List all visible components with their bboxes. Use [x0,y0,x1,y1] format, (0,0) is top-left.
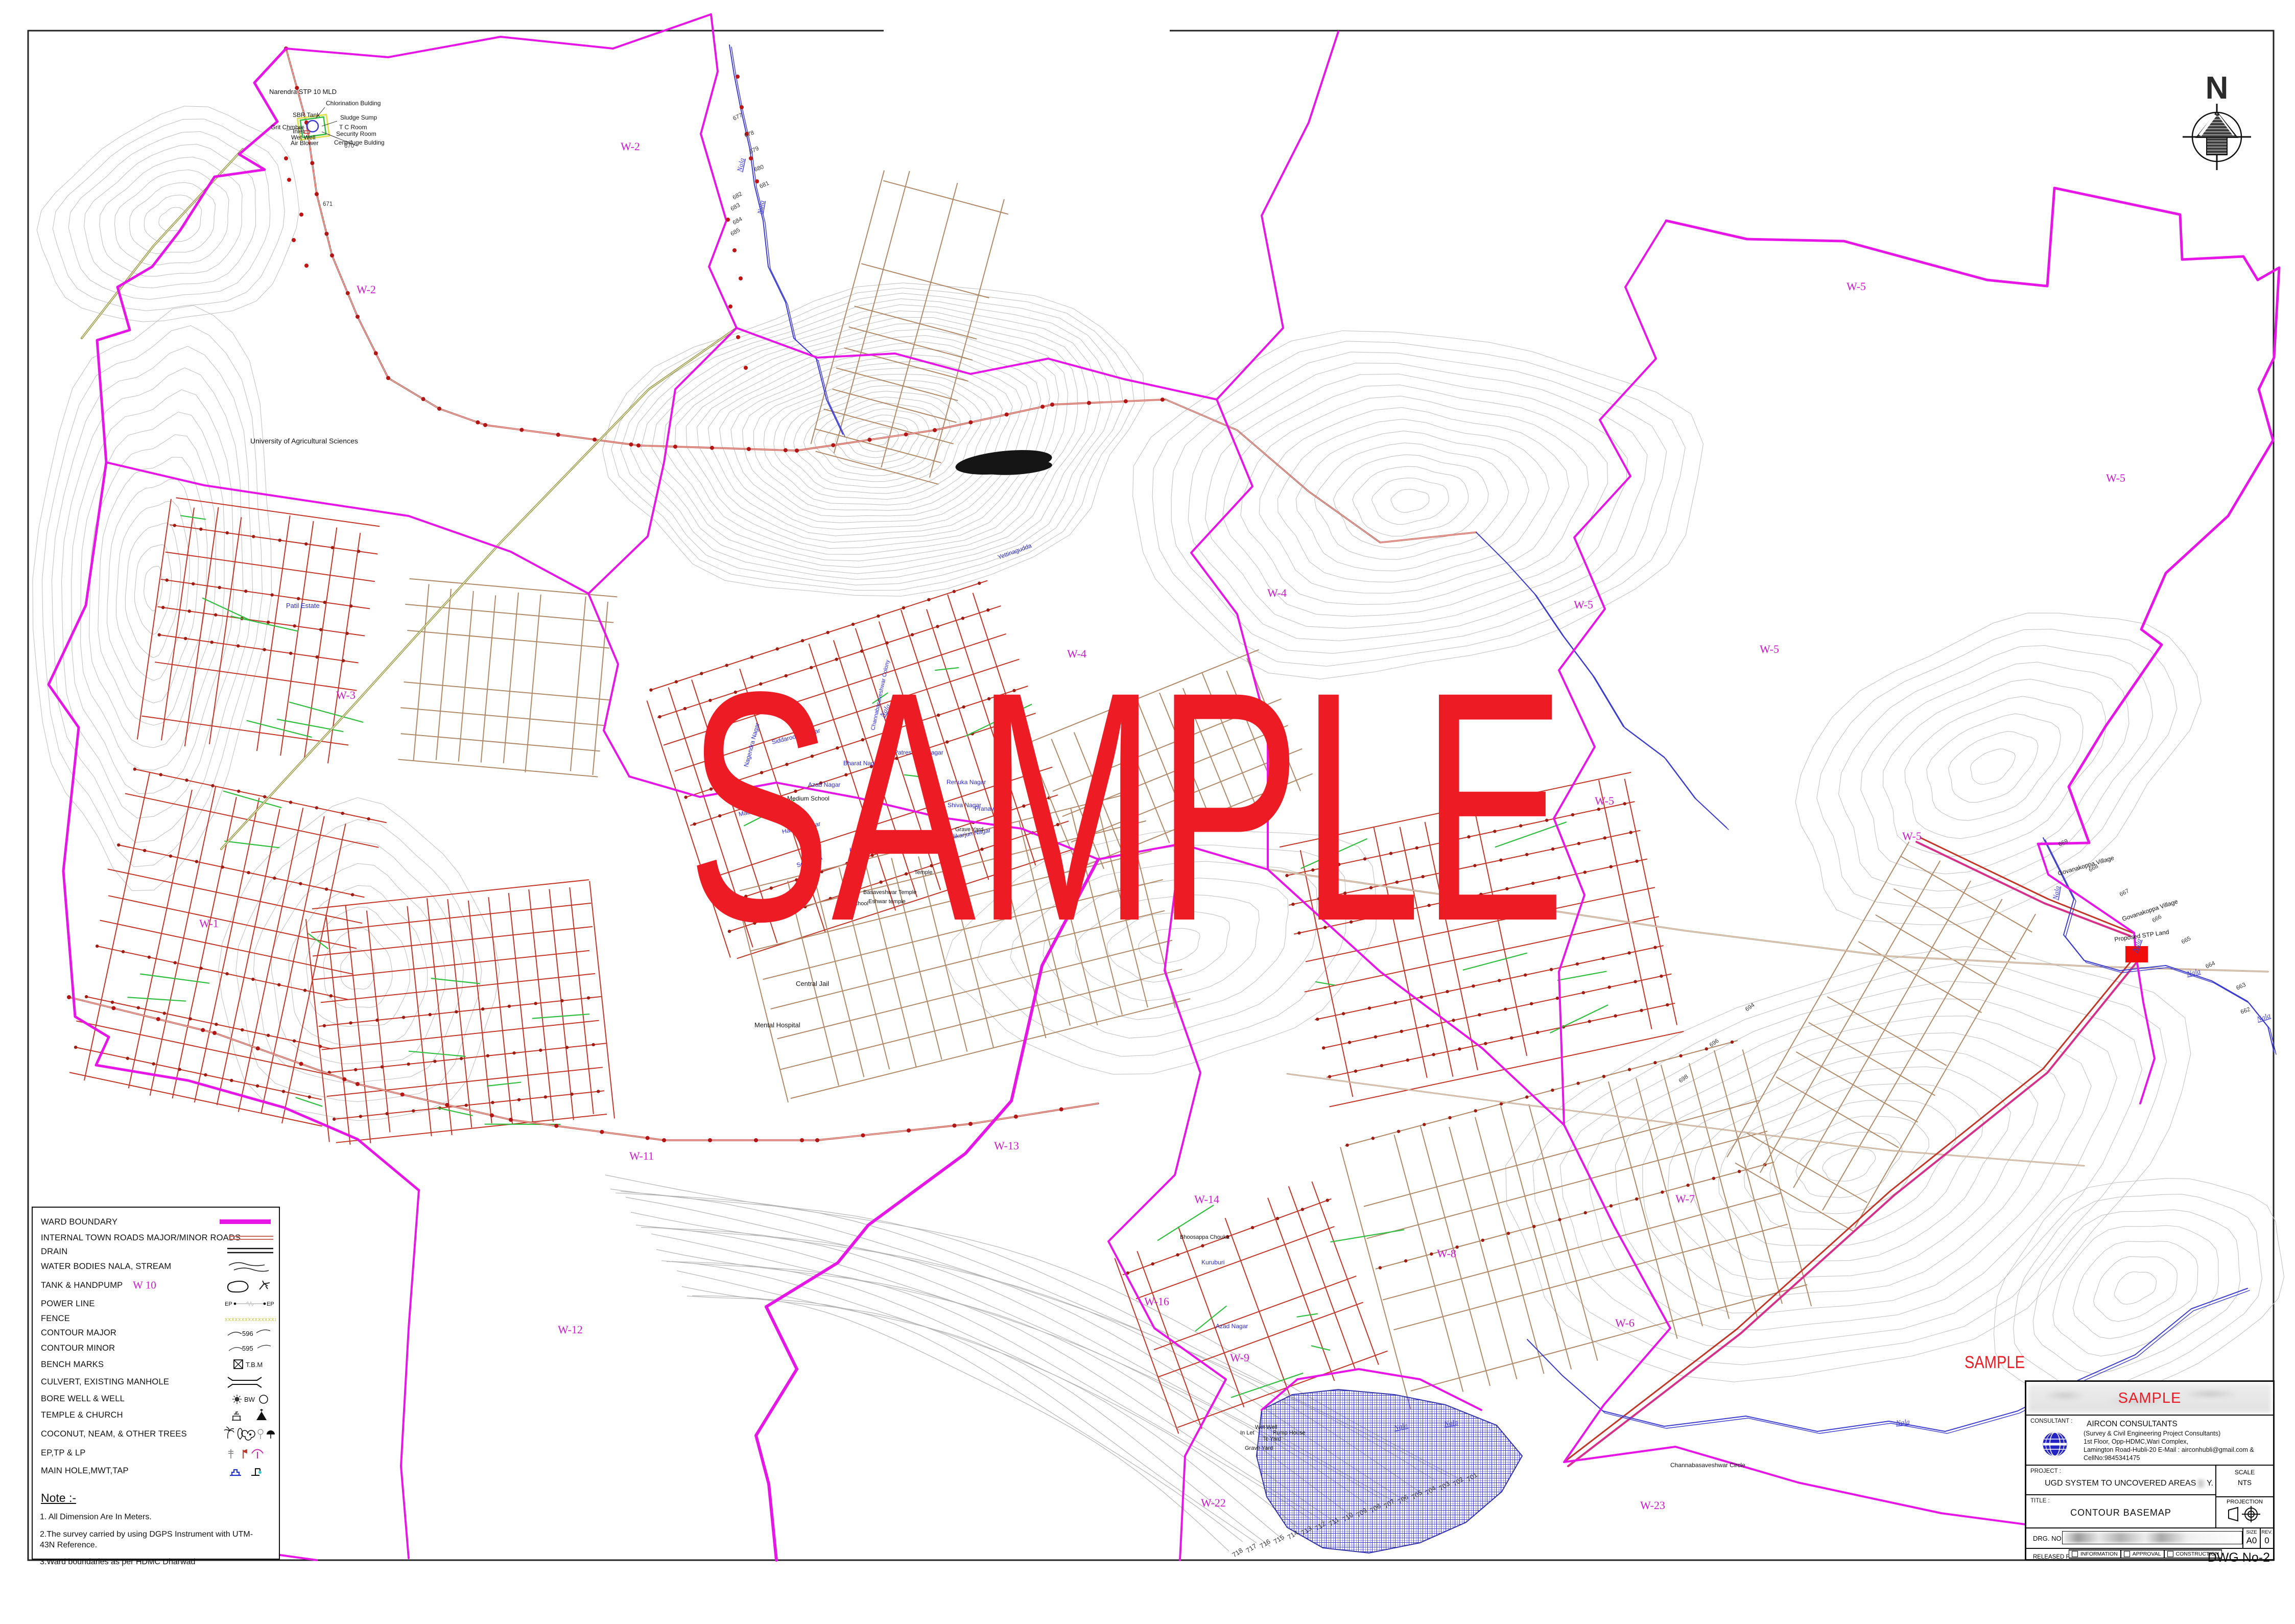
size-value: A0 [2243,1536,2260,1546]
power-symbol: EPEP [199,1296,276,1311]
legend-item-drain: DRAIN [33,1245,279,1258]
place-label: T C Room [339,124,367,131]
place-label: Govanakoppa Village [2057,854,2115,877]
place-label: Tc Yard [1263,1436,1281,1442]
ward-label: W-5 [1902,830,1922,842]
contour-elevation-label: 662 [2240,1006,2251,1016]
approval-checkbox [2124,1551,2130,1557]
ward-label: W-1 [199,917,219,930]
legend-item-water: WATER BODIES NALA, STREAM [33,1258,279,1275]
legend-item-label: POWER LINE [33,1299,95,1309]
ward-label: W-3 [336,689,356,701]
title-block: SAMPLE CONSULTANT : AIRCON CONSULTANTS (… [2025,1380,2275,1561]
ward-label: W-4 [1267,586,1287,599]
ward-label: W-2 [621,140,640,153]
tank-symbol [199,1278,276,1293]
legend-item-bore: BORE WELL & WELLBW [33,1391,279,1407]
legend-item-temple: TEMPLE & CHURCH [33,1407,279,1424]
approval-label: APPROVAL [2133,1551,2161,1557]
title-row: TITLE : CONTOUR BASEMAP SCALE NTS PROJEC… [2026,1495,2273,1528]
title-block-header-strip: SAMPLE [2026,1382,2273,1416]
ward-label: W-5 [1595,794,1614,807]
svg-text:EP: EP [225,1301,232,1307]
contour-elevation-label: 679 [748,146,760,155]
legend-item-fence: FENCExxxxxxxxxxxxxxxxx [33,1312,279,1326]
contour-elevation-label: 717 [1244,1542,1258,1554]
ward-label: W-9 [1230,1351,1249,1364]
ward-boundary [2038,844,2155,1103]
contour-elevation-label: 685 [730,227,742,238]
place-label: Azad Nagar [1216,1323,1248,1330]
project-redacted [2198,1479,2205,1488]
legend-item-power: POWER LINEEPEP [33,1296,279,1312]
place-label: Security Room [336,130,376,137]
poles-symbol [199,1445,276,1461]
place-label: Kuruburi [1201,1259,1224,1266]
ward-boundary [1554,221,1666,1125]
svg-text:596: 596 [242,1330,253,1337]
contour-elevation-label: 696 [1709,1038,1720,1049]
ward-label: W-12 [558,1323,583,1336]
dwg-number: DWG No-2 [2208,1550,2270,1565]
notes-section: Note :- 1. All Dimension Are In Meters.2… [33,1480,279,1568]
consultant-logo-globe [2042,1431,2068,1457]
svg-text:595: 595 [242,1345,253,1352]
released-row: RELEASED FOR INFORMATION APPROVAL CONSTR… [2026,1549,2273,1559]
roads-symbol [199,1231,276,1246]
stream-label: Nala [1895,1419,1910,1427]
legend-item-label: WATER BODIES NALA, STREAM [33,1262,171,1272]
consultant-row: CONSULTANT : AIRCON CONSULTANTS (Survey … [2026,1416,2273,1466]
legend-item-label: TANK & HANDPUMP [33,1281,123,1290]
projection-label: PROJECTION [2216,1499,2273,1505]
north-arrow-letter: N [2206,70,2229,106]
legend-ward-ref: W 10 [133,1279,156,1292]
legend-item-label: CONTOUR MAJOR [33,1328,116,1338]
drawing-sheet: 7017027037047057067077087097107117127137… [0,0,2295,1624]
drg-number-field [2062,1531,2242,1544]
consultant-name: AIRCON CONSULTANTS [2087,1420,2178,1429]
legend-item-utility: MAIN HOLE,MWT,TAP [33,1462,279,1480]
legend-item-label: COCONUT, NEAM, & OTHER TREES [33,1429,187,1439]
legend-item-label: TEMPLE & CHURCH [33,1410,123,1420]
bench-symbol: T.B.M [199,1357,276,1372]
ward-label: W-23 [1640,1499,1665,1512]
size-label: SIZE [2243,1529,2260,1535]
drawing-title: CONTOUR BASEMAP [2026,1508,2215,1518]
place-label: Grave Yard [1245,1445,1273,1451]
project-label: PROJECT : [2030,1468,2061,1474]
legend-item-label: BENCH MARKS [33,1360,104,1370]
legend-item-poles: EP,TP & LP [33,1444,279,1462]
information-label: INFORMATION [2080,1551,2118,1557]
ward-label: W-14 [1194,1193,1219,1206]
notes-heading: Note :- [41,1491,272,1505]
note-item: 2.The survey carried by using DGPS Instr… [40,1529,265,1551]
sample-watermark-small: SAMPLE [1965,1353,2025,1372]
title-label: TITLE : [2030,1498,2050,1504]
place-label: Pump House [1273,1430,1306,1436]
title-block-sample: SAMPLE [2118,1390,2182,1407]
drg-row: DRG. NO SIZE A0 REV. 0 [2026,1528,2273,1549]
cminor-symbol: 595 [199,1340,276,1356]
legend-item-label: DRAIN [33,1247,67,1257]
note-item: 3.Ward boundaries as per HDMC Dharwad [40,1557,265,1568]
stream-label: Nala [756,200,767,215]
information-checkbox [2072,1551,2078,1557]
legend-item-label: FENCE [33,1314,70,1324]
projection-symbol [2225,1505,2265,1523]
consultant-line: 1st Floor, Opp-HDMC,Wari Complex, [2084,1438,2188,1445]
svg-text:BW: BW [244,1396,255,1403]
consultant-line: Lamington Road-Hubli-20 E-Mail : airconh… [2084,1446,2254,1453]
contour-elevation-label: 718 [1231,1546,1244,1559]
ward-boundary [286,14,711,57]
ward-label: W-2 [357,283,376,296]
svg-text:T.B.M: T.B.M [246,1361,263,1369]
size-cell: SIZE A0 [2242,1528,2260,1548]
place-label: Narendra STP 10 MLD [269,88,337,96]
ward-label: W-11 [629,1149,654,1162]
contour-elevation-label: 664 [2205,960,2216,970]
fence-symbol: xxxxxxxxxxxxxxxxx [199,1311,276,1327]
scale-projection-column: SCALE NTS PROJECTION [2215,1466,2273,1527]
note-item: 1. All Dimension Are In Meters. [40,1512,265,1523]
consultant-label: CONSULTANT : [2030,1418,2072,1424]
contour-elevation-label: 671 [323,201,333,207]
construction-checkbox [2167,1551,2173,1557]
released-option-approval: APPROVAL [2121,1549,2164,1559]
ward-label: W-5 [1760,643,1779,655]
place-label: Sludge Sump [340,114,377,121]
rev-cell: REV. 0 [2260,1528,2273,1548]
contour-elevation-label: 680 [753,164,765,173]
legend-item-label: MAIN HOLE,MWT,TAP [33,1466,129,1476]
legend-item-label: CONTOUR MINOR [33,1344,115,1353]
legend-item-roads: INTERNAL TOWN ROADS MAJOR/MINOR ROADS [33,1231,279,1245]
scale-label: SCALE [2216,1469,2273,1476]
water-symbol [199,1259,276,1275]
legend-item-cminor: CONTOUR MINOR595 [33,1340,279,1356]
contour-elevation-label: 682 [732,191,744,201]
contour-elevation-label: 684 [732,216,744,226]
legend-item-label: EP,TP & LP [33,1448,86,1458]
contour-elevation-label: 670 [344,143,354,149]
cmajor-symbol: 596 [199,1326,276,1341]
contour-elevation-label: 681 [759,180,770,190]
contour-elevation-label: 669 [2057,838,2069,848]
legend-item-bench: BENCH MARKST.B.M [33,1356,279,1373]
rev-label: REV. [2261,1529,2273,1535]
contour-elevation-label: 663 [2235,982,2246,992]
ward-label: W-7 [1675,1192,1695,1205]
place-label: Mental Hospital [754,1021,800,1029]
project-text: UGD SYSTEM TO UNCOVERED AREAS [2045,1479,2196,1488]
temple-symbol [199,1408,276,1423]
place-label: Chlorination Bulding [326,100,381,107]
legend-item-label: WARD BOUNDARY [33,1217,117,1227]
ward-label: W-13 [994,1139,1019,1152]
place-label: SBR Tank [293,111,320,119]
ward-boundary [1666,188,2279,844]
ward-label: W-22 [1201,1496,1226,1509]
stream-label: Nala [2052,885,2062,901]
ward-label: W-5 [2106,472,2125,484]
ward-label: W-8 [1437,1247,1456,1260]
place-label: Air Blower [291,139,319,147]
ward-boundary [401,1190,419,1558]
legend-item-label: CULVERT, EXISTING MANHOLE [33,1377,169,1387]
svg-text:xxxxxxxxxxxxxxxxx: xxxxxxxxxxxxxxxxx [225,1316,276,1323]
ward-symbol [199,1214,276,1230]
water-tank-area [1257,1390,1522,1553]
contour-elevation-label: 666 [2151,914,2163,924]
legend-item-trees: COCONUT, NEAM, & OTHER TREES [33,1424,279,1444]
legend-item-ward: WARD BOUNDARY [33,1213,279,1231]
place-label: Channabasaveshwar Circle [1670,1462,1745,1469]
map-canvas: 7017027037047057067077087097107117127137… [0,0,2295,1624]
svg-text:EP: EP [267,1301,274,1307]
legend-item-tank: TANK & HANDPUMPW 10 [33,1275,279,1296]
contour-elevation-label: 665 [2181,935,2192,946]
ward-label: W-16 [1144,1295,1169,1308]
place-label: Patil Estate [286,602,320,609]
legend-item-culvert: CULVERT, EXISTING MANHOLE [33,1373,279,1391]
culvert-symbol [199,1375,276,1390]
place-label: University of Agricultural Sciences [250,437,358,445]
legend-panel: WARD BOUNDARYINTERNAL TOWN ROADS MAJOR/M… [32,1207,280,1560]
released-option-information: INFORMATION [2069,1549,2121,1559]
stream-label: Nala [736,157,747,173]
ward-boundary [49,49,419,1190]
map-cover-patch [884,29,1170,89]
contour-elevation-label: 694 [1744,1002,1756,1013]
rev-value: 0 [2261,1536,2273,1546]
project-suffix: Y. [2207,1479,2213,1488]
place-label: Bhoosappa Chouka [1180,1234,1230,1240]
scale-value: NTS [2216,1479,2273,1487]
place-label: In Let [1240,1430,1255,1436]
bore-symbol: BW [199,1392,276,1407]
ward-boundary [106,462,588,594]
contour-elevation-label: 698 [1678,1074,1690,1085]
ward-label: W-5 [1847,280,1866,293]
consultant-line: (Survey & Civil Engineering Project Cons… [2084,1430,2220,1437]
legend-rows: WARD BOUNDARYINTERNAL TOWN ROADS MAJOR/M… [33,1213,279,1480]
consultant-line: CellNo:9845341475 [2084,1454,2140,1462]
contour-elevation-label: 683 [730,202,742,213]
place-label: Centrifuge Bulding [334,139,385,146]
trees-symbol [199,1426,276,1442]
contour-elevation-label: 667 [2119,888,2131,898]
drain-symbol [199,1244,276,1259]
legend-item-label: BORE WELL & WELL [33,1394,125,1404]
ward-label: W-6 [1615,1316,1635,1329]
ward-label: W-5 [1574,598,1593,611]
legend-item-cmajor: CONTOUR MAJOR596 [33,1326,279,1340]
sample-watermark: SAMPLE [687,624,1566,989]
place-label: Govanakoppa Village [2121,898,2179,923]
utility-symbol [199,1463,276,1478]
north-arrow: N [2168,69,2265,179]
drg-label: DRG. NO [2033,1535,2062,1542]
contour-elevation-label: 715 [1272,1533,1285,1545]
